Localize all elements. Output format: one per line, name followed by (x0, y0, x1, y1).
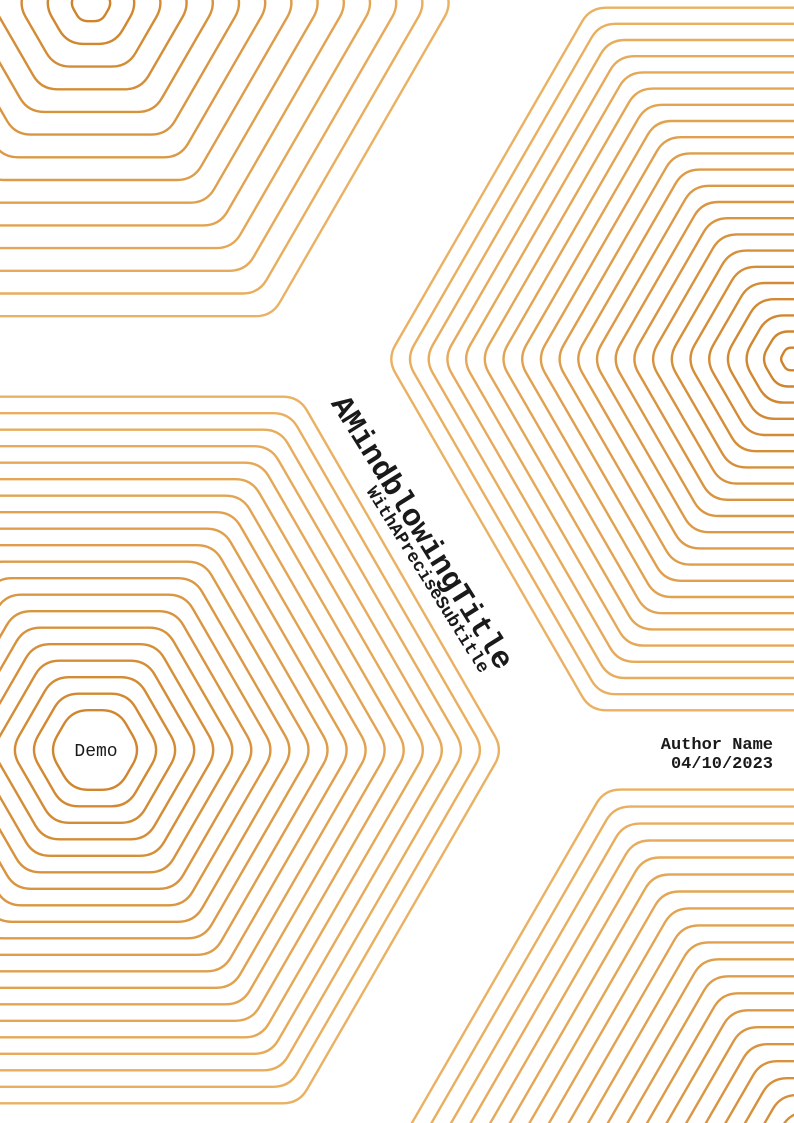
hexagon-ring (539, 942, 794, 1123)
hexagon-ring (402, 824, 794, 1123)
hexagon-ring (781, 348, 794, 371)
hexagon-decor (0, 0, 794, 1123)
hexagon-ring (578, 170, 794, 549)
hexagon-ring (429, 40, 794, 678)
hexagon-ring (0, 479, 404, 1021)
author-block: Author Name 04/10/2023 (661, 736, 773, 774)
hexagon-ring (598, 993, 794, 1123)
hexagon-ring (747, 315, 794, 402)
demo-label: Demo (74, 743, 117, 761)
hexagon-ring (0, 0, 213, 112)
hexagon-ring (0, 578, 289, 922)
hexagon-ring (764, 332, 794, 387)
hexagon-ring (0, 0, 370, 248)
hexagon-ring (466, 72, 794, 645)
hexagon-ring (616, 202, 794, 516)
hexagon-ring (72, 0, 110, 21)
hexagon-ring (0, 562, 309, 939)
hexagon-pattern-bottom-right (363, 790, 794, 1123)
cover-page: AMindblowingTitle WithAPreciseSubtitle A… (0, 0, 794, 1123)
hexagon-ring (634, 218, 794, 500)
hexagon-ring (0, 446, 442, 1054)
hexagon-ring (0, 0, 239, 135)
hexagon-ring (637, 1027, 794, 1123)
author-name: Author Name (661, 736, 773, 755)
hexagon-ring (653, 234, 794, 483)
hexagon-ring (0, 545, 328, 955)
hexagon-ring (520, 925, 794, 1123)
hexagon-ring (522, 121, 794, 597)
hexagon-ring (0, 0, 291, 180)
document-date: 04/10/2023 (661, 755, 773, 774)
hexagon-ring (422, 841, 794, 1123)
hexagon-ring (22, 0, 161, 67)
hexagon-pattern-top-left (0, 0, 449, 316)
hexagon-ring (728, 299, 794, 419)
